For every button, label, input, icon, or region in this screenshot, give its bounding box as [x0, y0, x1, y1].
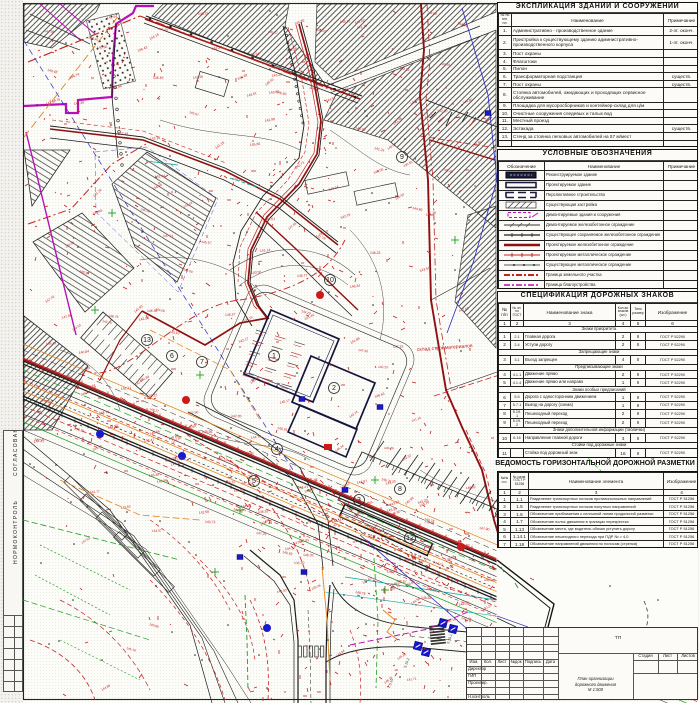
svg-text:146.88: 146.88	[426, 586, 437, 593]
svg-text:143.50: 143.50	[74, 426, 85, 433]
svg-text:142.25: 142.25	[244, 451, 254, 456]
svg-text:140.96: 140.96	[484, 578, 495, 582]
svg-text:145.19: 145.19	[217, 457, 228, 462]
svg-text:142.75: 142.75	[461, 616, 472, 621]
svg-text:147.90: 147.90	[479, 526, 490, 532]
svg-text:142.27: 142.27	[211, 45, 222, 51]
svg-text:143.51: 143.51	[419, 266, 430, 273]
svg-text:2: 2	[332, 385, 336, 392]
svg-text:141.86: 141.86	[350, 336, 361, 345]
svg-text:144.78: 144.78	[99, 410, 110, 415]
svg-text:142.87: 142.87	[356, 479, 367, 485]
svg-text:146.33: 146.33	[198, 12, 209, 16]
svg-text:148.24: 148.24	[334, 444, 344, 453]
svg-text:146.43: 146.43	[137, 45, 148, 53]
svg-text:143.83: 143.83	[389, 499, 400, 506]
svg-text:142.26: 142.26	[138, 316, 149, 322]
svg-text:144.80: 144.80	[412, 206, 423, 212]
svg-text:140.93: 140.93	[282, 550, 293, 556]
svg-text:141.71: 141.71	[407, 677, 417, 682]
svg-text:141.16: 141.16	[411, 416, 422, 423]
svg-text:144.51: 144.51	[265, 217, 276, 222]
svg-text:147.70: 147.70	[44, 295, 55, 304]
svg-text:148.56: 148.56	[202, 430, 212, 434]
svg-text:146.49: 146.49	[153, 76, 164, 80]
svg-text:140.23: 140.23	[378, 365, 388, 369]
svg-text:140.89: 140.89	[149, 622, 160, 629]
svg-text:7: 7	[200, 359, 204, 366]
svg-text:141.29: 141.29	[92, 188, 103, 198]
svg-text:145.17: 145.17	[279, 398, 290, 405]
svg-text:145.66: 145.66	[250, 142, 261, 147]
svg-text:143.76: 143.76	[102, 319, 113, 325]
svg-text:146.88: 146.88	[431, 571, 441, 576]
svg-text:143.10: 143.10	[169, 330, 180, 335]
svg-text:146.77: 146.77	[297, 274, 308, 278]
svg-text:145.67: 145.67	[189, 110, 200, 117]
svg-text:143.98: 143.98	[404, 496, 415, 506]
svg-text:142.71: 142.71	[121, 386, 132, 391]
svg-text:146.34: 146.34	[350, 284, 361, 289]
svg-text:142.32: 142.32	[401, 453, 412, 462]
svg-text:142.17: 142.17	[238, 337, 249, 344]
svg-text:144.16: 144.16	[149, 32, 160, 40]
svg-text:5: 5	[252, 478, 256, 485]
svg-text:145.26: 145.26	[311, 583, 322, 591]
svg-text:145.16: 145.16	[92, 208, 103, 216]
svg-text:146.91: 146.91	[277, 426, 288, 432]
svg-text:143.74: 143.74	[348, 410, 358, 419]
svg-text:148.32: 148.32	[258, 509, 269, 514]
svg-text:143.29: 143.29	[271, 72, 282, 78]
svg-text:141.26: 141.26	[193, 75, 204, 80]
svg-text:142.22: 142.22	[458, 601, 469, 607]
svg-text:142.85: 142.85	[231, 414, 242, 418]
svg-text:148.32: 148.32	[466, 485, 476, 490]
svg-text:140.55: 140.55	[403, 160, 414, 168]
svg-text:147.20: 147.20	[241, 481, 252, 486]
svg-text:143.73: 143.73	[205, 520, 216, 524]
svg-text:142.98: 142.98	[264, 117, 275, 123]
svg-text:148.30: 148.30	[355, 126, 366, 132]
svg-text:145.54: 145.54	[387, 569, 398, 574]
svg-text:142.56: 142.56	[199, 510, 210, 515]
svg-text:8: 8	[398, 486, 402, 493]
svg-text:144.86: 144.86	[232, 177, 243, 182]
svg-text:142.20: 142.20	[437, 109, 448, 113]
svg-text:142.90: 142.90	[188, 410, 199, 415]
svg-text:142.16: 142.16	[340, 212, 351, 219]
svg-text:143.22: 143.22	[147, 393, 158, 398]
svg-text:147.73: 147.73	[435, 346, 445, 351]
svg-text:142.28: 142.28	[444, 564, 455, 572]
svg-text:147.93: 147.93	[80, 536, 91, 545]
svg-text:140.84: 140.84	[78, 349, 89, 355]
svg-text:141.24: 141.24	[374, 146, 385, 153]
svg-text:144.78: 144.78	[251, 434, 262, 440]
svg-text:143.88: 143.88	[157, 478, 168, 484]
svg-text:3: 3	[357, 497, 361, 504]
svg-text:141.77: 141.77	[90, 490, 100, 494]
svg-text:13: 13	[143, 337, 151, 344]
svg-text:140.48: 140.48	[47, 68, 58, 74]
svg-text:146.39: 146.39	[303, 553, 314, 557]
svg-text:142.73: 142.73	[294, 161, 305, 170]
svg-text:140.56: 140.56	[251, 270, 262, 275]
svg-text:148.37: 148.37	[225, 312, 236, 317]
svg-text:9: 9	[400, 154, 404, 161]
svg-text:141.21: 141.21	[411, 554, 422, 559]
svg-text:4: 4	[275, 446, 279, 453]
svg-text:143.63: 143.63	[121, 504, 131, 510]
svg-text:145.18: 145.18	[126, 646, 137, 652]
svg-text:145.81: 145.81	[92, 444, 103, 452]
svg-text:141.15: 141.15	[214, 141, 225, 150]
svg-text:143.93: 143.93	[133, 304, 144, 314]
svg-text:141.96: 141.96	[259, 518, 270, 527]
svg-text:148.78: 148.78	[355, 590, 366, 596]
svg-text:10: 10	[326, 277, 334, 284]
svg-text:1: 1	[272, 353, 276, 360]
svg-text:147.40: 147.40	[358, 348, 368, 353]
svg-text:144.44: 144.44	[80, 389, 91, 396]
svg-text:147.86: 147.86	[61, 313, 72, 320]
svg-text:146.19: 146.19	[445, 617, 456, 624]
svg-text:148.97: 148.97	[386, 142, 397, 151]
svg-text:146.23: 146.23	[309, 86, 320, 91]
svg-text:12: 12	[406, 535, 414, 542]
svg-text:144.79: 144.79	[69, 72, 80, 80]
svg-text:145.67: 145.67	[201, 240, 212, 245]
svg-text:146.52: 146.52	[421, 596, 431, 600]
svg-text:140.44: 140.44	[158, 27, 168, 32]
svg-text:144.79: 144.79	[425, 211, 436, 217]
svg-text:146.38: 146.38	[149, 472, 160, 478]
svg-text:144.88: 144.88	[101, 683, 112, 691]
svg-text:5.19.2: 5.19.2	[403, 658, 410, 669]
svg-text:5.19.1: 5.19.1	[446, 634, 453, 645]
svg-text:143.81: 143.81	[246, 91, 257, 98]
svg-text:6: 6	[170, 353, 174, 360]
svg-text:145.51: 145.51	[264, 77, 275, 87]
svg-text:145.54: 145.54	[328, 185, 339, 192]
svg-text:147.71: 147.71	[163, 234, 174, 238]
svg-text:142.31: 142.31	[278, 469, 289, 473]
svg-text:146.63: 146.63	[374, 392, 385, 399]
svg-text:141.39: 141.39	[74, 100, 85, 106]
svg-text:141.50: 141.50	[183, 267, 194, 274]
svg-text:146.23: 146.23	[370, 251, 380, 255]
svg-text:144.72: 144.72	[433, 560, 444, 567]
svg-text:143.79: 143.79	[50, 98, 61, 103]
svg-text:140.50: 140.50	[373, 167, 384, 175]
svg-text:144.20: 144.20	[294, 561, 305, 565]
svg-text:145.81: 145.81	[298, 538, 309, 544]
svg-text:146.94: 146.94	[394, 192, 405, 201]
svg-text:143.19: 143.19	[150, 136, 161, 141]
svg-text:146.22: 146.22	[225, 480, 236, 485]
svg-text:142.43: 142.43	[361, 576, 372, 585]
svg-text:148.46: 148.46	[445, 554, 456, 562]
svg-text:143.39: 143.39	[237, 73, 248, 81]
svg-text:140.76: 140.76	[384, 446, 394, 450]
svg-text:147.15: 147.15	[393, 344, 404, 349]
svg-text:147.25: 147.25	[256, 531, 267, 536]
svg-text:147.85: 147.85	[287, 221, 297, 230]
svg-text:147.44: 147.44	[118, 132, 129, 136]
svg-text:144.87: 144.87	[152, 528, 162, 533]
